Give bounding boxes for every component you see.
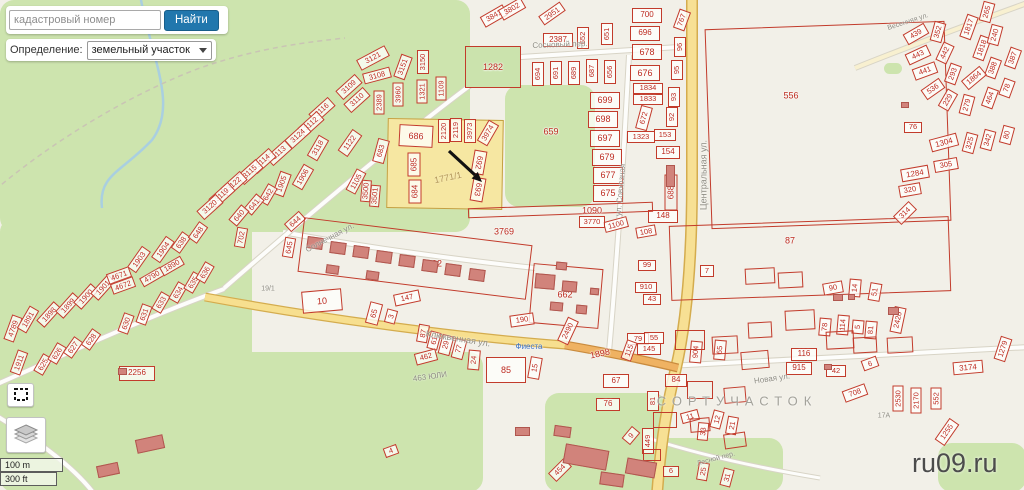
parcel-outline[interactable] [777, 271, 803, 288]
parcel-outline[interactable] [745, 267, 776, 285]
parcel[interactable]: 910 [635, 282, 657, 293]
parcel[interactable]: 691 [550, 61, 562, 85]
parcel[interactable]: 3960 [393, 82, 404, 106]
parcel[interactable]: 1817 [959, 14, 978, 41]
parcel[interactable]: 2170 [911, 387, 922, 413]
layers-icon [13, 424, 39, 446]
building [901, 102, 909, 108]
parcel[interactable]: 84 [665, 374, 687, 387]
building [325, 264, 339, 275]
definition-select[interactable]: земельный участок [87, 41, 212, 60]
map-text-label: Центральная ул. [700, 140, 709, 210]
site-watermark: ru09.ru [912, 448, 998, 479]
parcel[interactable]: 51 [868, 282, 883, 302]
parcel-label[interactable]: 556 [783, 92, 798, 101]
parcel-outline[interactable] [675, 330, 705, 350]
building [589, 287, 599, 295]
parcel[interactable]: 3 [384, 308, 398, 324]
map-text-label: СОРТУЧАСТОК [657, 395, 818, 408]
parcel[interactable]: 10 [301, 288, 343, 313]
parcel[interactable]: 240 [987, 24, 1004, 46]
parcel[interactable]: 3770 [579, 216, 605, 228]
definition-value: земельный участок [92, 44, 190, 56]
building [833, 294, 843, 301]
parcel[interactable]: 696 [630, 26, 660, 41]
parcel[interactable]: 99 [638, 260, 656, 271]
map-text-label: 19/1 [261, 286, 275, 293]
parcel[interactable]: 147 [393, 289, 421, 306]
building [118, 368, 127, 375]
parcel[interactable]: 305 [933, 157, 959, 173]
parcel[interactable]: 78 [998, 77, 1015, 98]
parcel-label[interactable]: 1898 [589, 348, 610, 361]
measure-extent-button[interactable] [7, 383, 34, 407]
parcel[interactable]: 293 [944, 63, 962, 86]
parcel[interactable]: 651 [601, 23, 613, 45]
parcel-outline[interactable] [748, 321, 773, 338]
parcel[interactable]: 154 [656, 146, 680, 159]
parcel[interactable]: 2951 [538, 1, 566, 25]
parcel-outline[interactable] [712, 335, 739, 354]
building [561, 280, 577, 292]
parcel-outline[interactable] [689, 417, 710, 433]
parcel[interactable]: 153 [654, 129, 676, 141]
extent-icon [13, 388, 29, 402]
parcel[interactable]: 694 [532, 62, 544, 86]
parcel-label[interactable]: 659 [543, 128, 558, 137]
parcel[interactable]: 687 [586, 59, 598, 83]
parcel[interactable]: 7 [700, 265, 714, 277]
search-input[interactable] [9, 10, 161, 30]
map[interactable]: 3121310831093110315131502389396013211109… [0, 0, 1024, 490]
parcel[interactable]: 1255 [935, 418, 960, 446]
parcel[interactable]: 3973 [464, 119, 476, 143]
parcel[interactable]: 685 [408, 152, 421, 176]
parcel[interactable]: 67 [603, 374, 629, 388]
parcel-outline[interactable] [826, 330, 855, 349]
parcel[interactable]: 265 [979, 1, 996, 23]
parcel[interactable]: 700 [632, 8, 662, 23]
building [555, 262, 567, 271]
parcel[interactable]: 96 [674, 37, 686, 57]
parcel[interactable]: 6 [663, 466, 679, 477]
parcel[interactable]: 767 [673, 9, 691, 32]
parcel[interactable]: 2119 [450, 118, 462, 142]
parcel-outline[interactable] [653, 412, 677, 428]
parcel[interactable]: 1100 [603, 216, 629, 233]
forest-area [505, 85, 595, 207]
building [329, 241, 347, 255]
parcel[interactable]: 15 [527, 356, 543, 380]
parcel[interactable]: 686 [398, 124, 433, 148]
building [824, 364, 832, 370]
parcel[interactable]: 678 [632, 44, 662, 60]
find-button[interactable]: Найти [164, 10, 219, 31]
parcel[interactable]: 93 [668, 87, 680, 107]
parcel[interactable]: 2530 [893, 385, 904, 411]
parcel[interactable]: 1833 [633, 94, 663, 105]
parcel[interactable]: 3150 [417, 50, 429, 74]
parcel[interactable]: 1323 [627, 131, 655, 143]
scalebar-imperial: 300 ft [0, 472, 57, 486]
parcel-label[interactable]: 3769 [494, 228, 514, 237]
building [599, 471, 625, 487]
parcel[interactable]: 2120 [438, 119, 450, 143]
parcel[interactable]: 464 [981, 87, 999, 110]
parcel[interactable]: 76 [904, 122, 922, 133]
building [352, 245, 370, 259]
scalebar-metric: 100 m [0, 458, 63, 472]
parcel[interactable]: 24 [467, 350, 481, 371]
parcel[interactable]: 676 [630, 65, 660, 81]
parcel[interactable]: 552 [931, 387, 942, 409]
building [534, 273, 555, 290]
map-text-label: 17А [878, 413, 890, 420]
building [848, 294, 855, 300]
parcel[interactable]: 699 [590, 92, 620, 109]
parcel[interactable]: 116 [791, 348, 817, 361]
definition-panel: Определение: земельный участок [6, 39, 216, 61]
building [666, 165, 675, 187]
parcel[interactable]: 85 [486, 357, 526, 383]
building [365, 270, 379, 281]
parcel[interactable]: 645 [282, 236, 296, 258]
parcel[interactable]: 708 [842, 383, 869, 402]
parcel-outline[interactable] [853, 336, 878, 353]
parcel[interactable]: 12 [709, 409, 724, 429]
parcel[interactable]: 3501 [369, 185, 381, 208]
building [421, 259, 439, 273]
building [515, 427, 530, 436]
parcel-label[interactable]: 1090 [582, 207, 602, 216]
parcel[interactable]: 1109 [436, 76, 447, 100]
building [375, 250, 393, 264]
parcel-outline[interactable] [669, 216, 951, 301]
parcel[interactable]: 108 [635, 224, 657, 238]
parcel[interactable]: 1279 [994, 336, 1013, 363]
parcel[interactable]: 698 [588, 111, 618, 128]
parcel[interactable]: 1321 [417, 79, 428, 103]
parcel[interactable]: 2389 [374, 90, 385, 114]
poi-label: Фиеста [515, 343, 542, 351]
parcel[interactable]: 95 [671, 60, 683, 80]
parcel[interactable]: 190 [509, 312, 534, 327]
parcel[interactable]: 6 [861, 355, 880, 371]
building [575, 304, 587, 314]
parcel[interactable]: 387 [1004, 47, 1022, 70]
parcel[interactable]: 697 [590, 130, 620, 147]
parcel[interactable]: 672 [635, 105, 653, 131]
parcel[interactable]: 43 [643, 294, 661, 305]
chevron-down-icon [199, 48, 207, 53]
parcel[interactable]: 684 [409, 179, 422, 203]
building [398, 254, 416, 268]
parcel[interactable]: 915 [786, 362, 812, 375]
search-panel: Найти [6, 6, 228, 34]
parcel[interactable]: 145 [637, 343, 661, 355]
parcel[interactable]: 80 [999, 125, 1015, 145]
parcel[interactable]: 76 [596, 398, 620, 411]
parcel[interactable]: 656 [604, 60, 616, 84]
parcel[interactable]: 115 [620, 339, 637, 362]
parcel-outline[interactable] [887, 336, 914, 353]
building [888, 307, 899, 315]
parcel[interactable]: 1834 [633, 83, 663, 94]
building [444, 263, 462, 277]
parcel-outline[interactable] [643, 449, 661, 461]
definition-label: Определение: [10, 44, 83, 56]
parcel[interactable]: 92 [666, 107, 678, 127]
parcel[interactable]: 689 [568, 61, 580, 85]
parcel[interactable]: 325 [962, 132, 979, 154]
layers-button[interactable] [6, 417, 46, 453]
parcel[interactable]: 342 [980, 129, 997, 151]
map-text-label: Новая ул. [754, 373, 791, 386]
building [549, 301, 563, 311]
parcel[interactable]: 3174 [952, 359, 983, 375]
parcel-outline[interactable] [740, 350, 769, 370]
parcel[interactable]: 279 [959, 94, 976, 116]
building [553, 424, 571, 437]
parcel-label[interactable]: 87 [785, 237, 795, 246]
parcel[interactable]: 65 [365, 301, 383, 326]
parcel[interactable]: 388 [984, 57, 1002, 80]
building [468, 268, 486, 282]
parcel-outline[interactable] [723, 431, 747, 449]
parcel-outline[interactable] [784, 309, 815, 331]
parcel[interactable]: 1282 [465, 46, 521, 88]
parcel[interactable]: 1864 [961, 66, 987, 91]
